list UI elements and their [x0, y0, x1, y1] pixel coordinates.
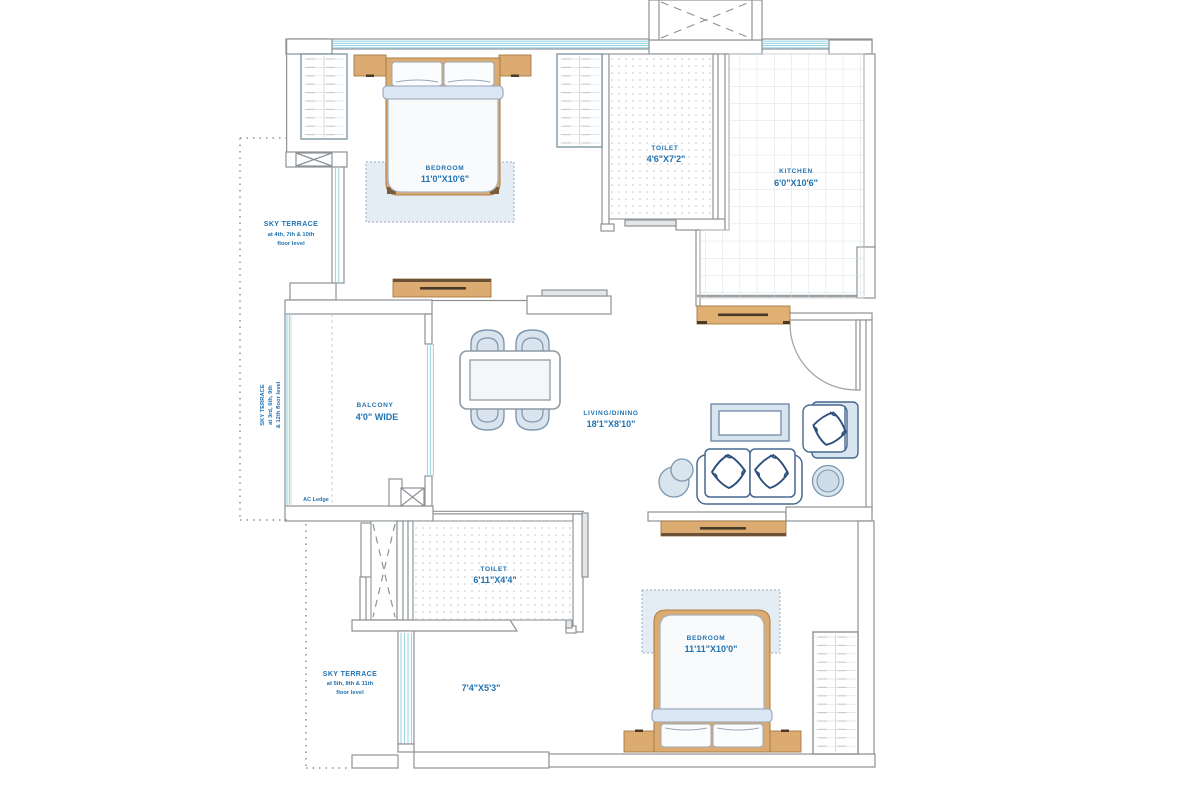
svg-text:BEDROOM: BEDROOM [426, 165, 465, 172]
svg-text:7'4"X5'3": 7'4"X5'3" [462, 683, 501, 693]
svg-text:SKY TERRACE: SKY TERRACE [323, 671, 377, 678]
svg-text:BALCONY: BALCONY [356, 402, 393, 409]
svg-text:4'0" WIDE: 4'0" WIDE [356, 412, 398, 422]
svg-text:TOILET: TOILET [651, 145, 678, 152]
svg-text:LIVING/DINING: LIVING/DINING [583, 410, 638, 417]
svg-text:at 5th, 8th & 11th: at 5th, 8th & 11th [327, 681, 374, 687]
svg-text:SKY TERRACE: SKY TERRACE [264, 221, 318, 228]
svg-text:& 12th floor level: & 12th floor level [276, 381, 282, 428]
svg-text:TOILET: TOILET [480, 566, 507, 573]
svg-text:KITCHEN: KITCHEN [779, 168, 813, 175]
svg-text:floor level: floor level [336, 690, 364, 696]
svg-text:SKY TERRACE: SKY TERRACE [260, 384, 266, 426]
svg-text:6'0"X10'6": 6'0"X10'6" [774, 178, 818, 188]
svg-text:4'6"X7'2": 4'6"X7'2" [647, 154, 686, 164]
svg-text:6'11"X4'4": 6'11"X4'4" [473, 575, 516, 585]
svg-text:floor level: floor level [277, 241, 305, 247]
svg-text:AC Ledge: AC Ledge [303, 497, 329, 503]
svg-text:18'1"X8'10": 18'1"X8'10" [587, 419, 636, 429]
svg-text:BEDROOM: BEDROOM [687, 635, 726, 642]
svg-text:at 4th, 7th & 10th: at 4th, 7th & 10th [268, 232, 315, 238]
svg-text:at 3rd, 6th, 9th: at 3rd, 6th, 9th [268, 385, 274, 425]
svg-text:11'11"X10'0": 11'11"X10'0" [685, 644, 738, 654]
svg-text:11'0"X10'6": 11'0"X10'6" [421, 174, 469, 184]
